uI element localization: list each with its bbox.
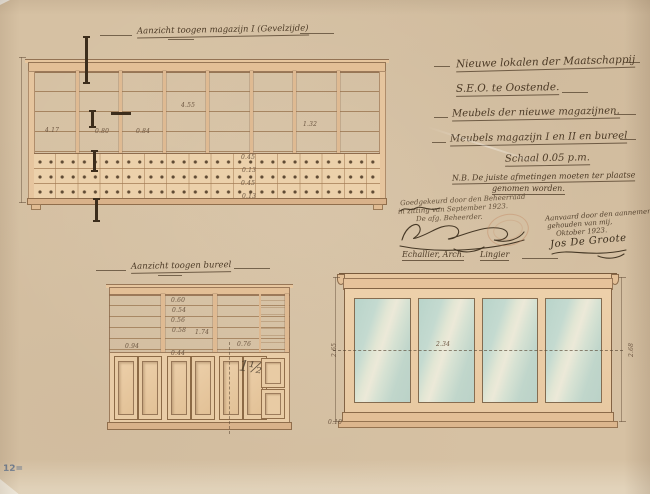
underline-dash: [614, 114, 636, 115]
dim-label: 0.56: [171, 317, 185, 324]
dim-label: 0.80: [95, 128, 109, 135]
double-underline: [168, 39, 194, 40]
underline-dash: [562, 92, 588, 93]
dim-label: 0.58: [172, 327, 186, 334]
dim-label: 0.13: [242, 193, 256, 200]
scale-note-text: Schaal 0.05 p.m.: [505, 152, 590, 166]
door-panel: [223, 361, 239, 415]
page-corner-tear: [0, 474, 34, 494]
title-line-3-text: Meubels der nieuwe magazijnen.: [452, 106, 620, 122]
vitrine-elevation: 2.34 2.65 2.68 0.10: [344, 273, 612, 431]
nb-note-line-1: N.B. De juiste afmetingen moeten ter pla…: [452, 170, 636, 182]
door-panel: [265, 362, 281, 384]
dim-label: 0.45: [241, 180, 255, 187]
architect-name-text: Echallier, Arch.: [402, 250, 464, 261]
pencil-dimension: 1½: [238, 356, 264, 377]
title-line-4-text: Meubels magazijn I en II en bureel: [450, 130, 628, 146]
cabinet-plinth: [107, 422, 292, 430]
bureel-cabinet-elevation: 0.94 1.74 0.76 0.60 0.54 0.56 0.58 0.44 …: [109, 284, 290, 437]
dim-label: 1.74: [195, 329, 209, 336]
dim-label: 0.10: [328, 419, 342, 426]
top-drawing-label: Aanzicht toogen magazijn I (Gevelzijde): [137, 24, 309, 37]
underline-dash: [100, 35, 132, 36]
cabinet-side-post: [379, 71, 386, 200]
underline-dash: [432, 142, 446, 143]
underline-dash: [96, 270, 126, 271]
dim-label: 0.76: [237, 341, 251, 348]
signature-word-squiggle: [398, 204, 442, 214]
builder-name: Lingier: [480, 250, 509, 259]
dim-label: 2.68: [628, 343, 635, 357]
builder-name-text: Lingier: [480, 250, 509, 261]
centerline-dashed: [333, 350, 623, 351]
dim-label: 0.54: [172, 307, 186, 314]
dim-label: 1.32: [303, 121, 317, 128]
dimension-bracket: [111, 112, 131, 115]
dim-label: 0.13: [242, 167, 256, 174]
dim-label: 0.45: [241, 154, 255, 161]
title-line-1: Nieuwe lokalen der Maatschappij: [456, 54, 635, 71]
signature-flourish: [550, 246, 630, 260]
drawing-sheet: Aanzicht toogen magazijn I (Gevelzijde) …: [0, 0, 650, 494]
door-panel: [195, 361, 211, 415]
glazed-frame: [344, 288, 612, 414]
underline-dash: [434, 117, 448, 118]
bureel-drawing-label: Aanzicht toogen bureel: [131, 260, 231, 272]
plinth-skirt: [338, 421, 618, 428]
architect-name: Echallier, Arch.: [402, 250, 464, 259]
door-panel: [265, 393, 281, 415]
drawer-grid: [34, 153, 380, 199]
title-line-2-text: S.E.O. te Oostende.: [456, 81, 560, 97]
cupboard-door: [114, 356, 138, 420]
sheet-number: 12=: [3, 464, 23, 474]
dim-label: 2.34: [436, 341, 450, 348]
door-panel: [142, 361, 158, 415]
magazijn-cabinet-elevation: 4.17 0.80 0.84 4.55 1.32 0.45 0.13 0.45 …: [29, 57, 385, 209]
cupboard-door: [138, 356, 162, 420]
title-line-1-text: Nieuwe lokalen der Maatschappij: [456, 54, 635, 73]
page-corner-tear: [0, 0, 10, 5]
dim-label: 0.44: [171, 350, 185, 357]
narrow-shelf-column: [259, 294, 287, 352]
bureel-drawing-label-text: Aanzicht toogen bureel: [131, 260, 231, 274]
title-line-2: S.E.O. te Oostende.: [456, 81, 560, 95]
door-panel: [171, 361, 187, 415]
cabinet-foot: [31, 204, 41, 210]
nb-note-1-text: N.B. De juiste afmetingen moeten ter pla…: [452, 170, 636, 184]
dim-label: 0.94: [125, 343, 139, 350]
section-mark: [91, 111, 94, 127]
side-panel: [261, 358, 285, 388]
cabinet-foot: [373, 204, 383, 210]
scale-note: Schaal 0.05 p.m.: [505, 152, 590, 164]
top-drawing-label-text: Aanzicht toogen magazijn I (Gevelzijde): [137, 24, 309, 39]
dim-label: 4.55: [181, 102, 195, 109]
dim-label: 0.84: [136, 128, 150, 135]
centerline-dashed: [229, 342, 230, 434]
underline-dash: [626, 62, 640, 63]
cupboard-door: [191, 356, 215, 420]
nb-note-line-2: genomen worden.: [492, 184, 565, 193]
section-mark: [93, 151, 96, 171]
underline-dash: [434, 66, 450, 67]
dimension-line: [21, 57, 22, 203]
underline-dash: [300, 33, 334, 34]
side-panel: [261, 389, 285, 419]
underline-dash: [620, 139, 636, 140]
section-mark: [95, 199, 98, 221]
cupboard-door: [167, 356, 191, 420]
dim-label: 4.17: [45, 127, 59, 134]
double-underline: [158, 275, 182, 276]
title-line-3: Meubels der nieuwe magazijnen.: [452, 106, 620, 120]
title-line-4: Meubels magazijn I en II en bureel: [450, 130, 628, 144]
door-panel: [118, 361, 134, 415]
underline-dash: [234, 268, 270, 269]
section-mark: [85, 37, 88, 83]
cabinet-plinth: [27, 198, 387, 205]
dim-label: 0.60: [171, 297, 185, 304]
